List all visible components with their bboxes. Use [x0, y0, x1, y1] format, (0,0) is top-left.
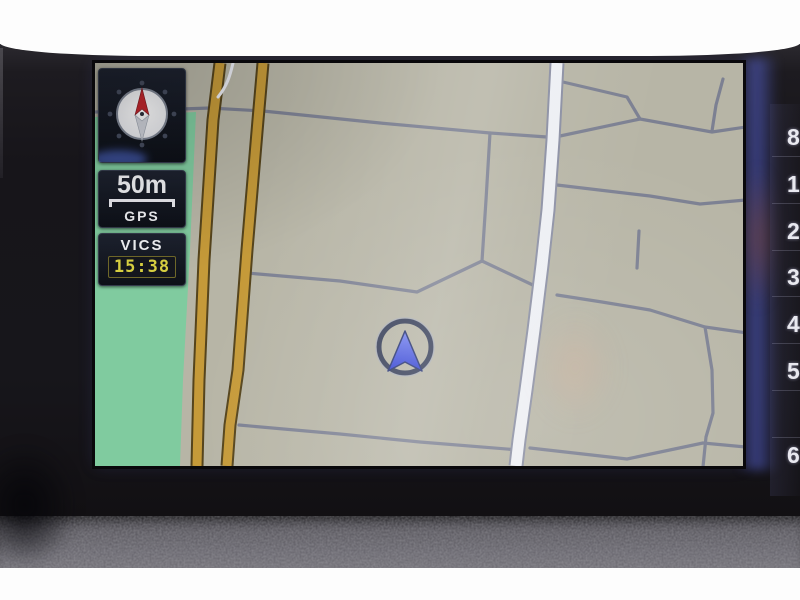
vics-label: VICS: [99, 237, 185, 254]
green-area: [95, 112, 196, 466]
map-scale-value: 50m: [99, 172, 185, 198]
side-button-5[interactable]: 5: [787, 358, 800, 385]
side-button-column: 8 1 2 3 4 5 6: [770, 104, 800, 496]
minor-road: [637, 231, 639, 268]
compass-rose-icon: [99, 69, 185, 162]
leather-texture: [0, 516, 800, 568]
photo-of-car-navigation: { "device": { "kind": "in-dash car navig…: [0, 0, 800, 600]
compass-widget[interactable]: [98, 68, 186, 163]
side-button-6[interactable]: 6: [787, 442, 800, 469]
side-button-4[interactable]: 4: [787, 311, 800, 338]
dashboard-leather: [0, 516, 800, 568]
vics-time: 15:38: [108, 256, 176, 278]
bezel-edge-highlight: [0, 48, 3, 178]
nav-touchscreen[interactable]: 50m GPS VICS 15:38: [95, 63, 743, 466]
side-button-1[interactable]: 1: [787, 171, 800, 198]
button-separator: [772, 437, 800, 438]
button-separator: [772, 203, 800, 204]
side-button-2[interactable]: 2: [787, 218, 800, 245]
side-button-8[interactable]: 8: [787, 124, 800, 151]
map-canvas[interactable]: [95, 63, 743, 466]
button-separator: [772, 390, 800, 391]
scale-widget[interactable]: 50m GPS: [98, 170, 186, 228]
vics-widget: VICS 15:38: [98, 233, 186, 286]
scale-bar-icon: [109, 199, 175, 207]
side-button-3[interactable]: 3: [787, 264, 800, 291]
button-separator: [772, 343, 800, 344]
photo-backdrop-bottom: [0, 568, 800, 600]
photo-backdrop-top: [0, 0, 800, 56]
button-separator: [772, 250, 800, 251]
gps-status-label: GPS: [99, 209, 185, 224]
button-separator: [772, 156, 800, 157]
button-separator: [772, 296, 800, 297]
unit-left-shadow: [0, 442, 77, 567]
